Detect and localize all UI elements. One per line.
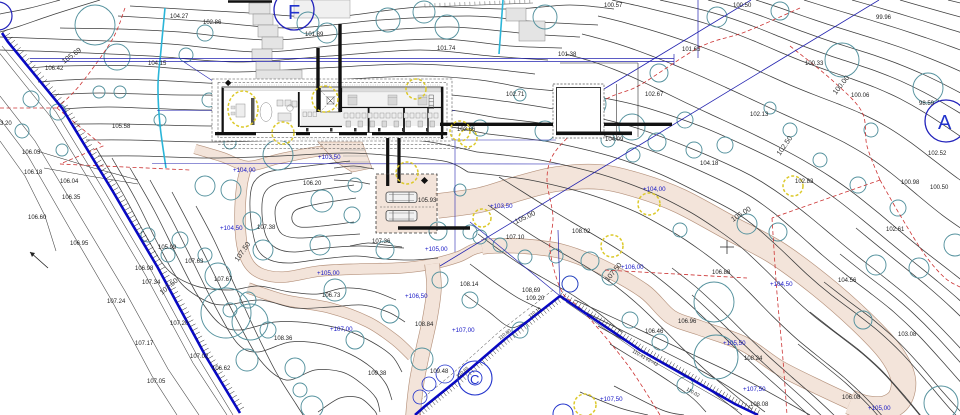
svg-text:104.27: 104.27 <box>170 14 189 20</box>
svg-text:+104,00: +104,00 <box>643 186 666 193</box>
svg-text:102.13: 102.13 <box>750 112 769 118</box>
svg-text:105.99: 105.99 <box>158 245 177 251</box>
svg-text:+103,50: +103,50 <box>490 203 513 210</box>
svg-text:101.89: 101.89 <box>305 32 324 38</box>
svg-text:109.48: 109.48 <box>430 369 449 375</box>
svg-text:106.42: 106.42 <box>45 66 64 72</box>
svg-text:104.18: 104.18 <box>700 161 719 167</box>
svg-text:3.20: 3.20 <box>0 121 12 127</box>
svg-text:100.98: 100.98 <box>901 180 920 186</box>
svg-text:106.60: 106.60 <box>28 215 47 221</box>
svg-text:+105,00: +105,00 <box>868 405 891 412</box>
svg-text:107.24: 107.24 <box>107 299 126 305</box>
svg-text:+103,50: +103,50 <box>318 154 341 161</box>
svg-text:+107,00: +107,00 <box>330 326 353 333</box>
svg-text:101.65: 101.65 <box>682 47 701 53</box>
svg-text:102.52: 102.52 <box>928 151 947 157</box>
svg-text:+104,00: +104,00 <box>233 167 256 174</box>
svg-text:101.74: 101.74 <box>437 46 456 52</box>
svg-text:100.57: 100.57 <box>604 3 623 9</box>
svg-text:106.88: 106.88 <box>712 270 731 276</box>
svg-text:101.38: 101.38 <box>558 52 577 58</box>
svg-text:106.18: 106.18 <box>24 170 43 176</box>
svg-text:C: C <box>470 372 479 387</box>
svg-text:107.17: 107.17 <box>135 341 154 347</box>
svg-text:102.61: 102.61 <box>886 227 905 233</box>
svg-text:102.71: 102.71 <box>506 92 525 98</box>
svg-text:+107,00: +107,00 <box>452 327 475 334</box>
svg-text:109.20: 109.20 <box>526 296 545 302</box>
svg-text:102.83: 102.83 <box>795 179 814 185</box>
svg-text:107.36: 107.36 <box>372 239 391 245</box>
svg-text:104.56: 104.56 <box>838 278 857 284</box>
svg-text:+105,50: +105,50 <box>723 340 746 347</box>
svg-text:107.05: 107.05 <box>147 379 166 385</box>
svg-text:107.67: 107.67 <box>214 277 233 283</box>
svg-text:107.34: 107.34 <box>142 280 161 286</box>
svg-text:+106,50: +106,50 <box>405 293 428 300</box>
svg-text:105.00: 105.00 <box>513 208 537 225</box>
svg-text:103.08: 103.08 <box>898 332 917 338</box>
svg-text:F: F <box>288 2 300 24</box>
svg-text:+107,50: +107,50 <box>743 386 766 393</box>
svg-text:+105,00: +105,00 <box>317 270 340 277</box>
svg-text:100.06: 100.06 <box>851 93 870 99</box>
svg-text:108,69: 108,69 <box>522 288 541 294</box>
svg-text:+105,00: +105,00 <box>425 246 448 253</box>
svg-text:108.02: 108.02 <box>572 229 591 235</box>
svg-text:106.35: 106.35 <box>62 195 81 201</box>
svg-text:104.09: 104.09 <box>605 137 624 143</box>
svg-text:110.02: 110.02 <box>685 387 701 400</box>
svg-text:105.58: 105.58 <box>112 124 131 130</box>
svg-text:107.10: 107.10 <box>506 235 525 241</box>
svg-text:107.02: 107.02 <box>190 354 209 360</box>
svg-text:105.69: 105.69 <box>60 45 83 65</box>
svg-text:100.50: 100.50 <box>930 185 949 191</box>
svg-text:109.38: 109.38 <box>368 371 387 377</box>
svg-text:108.24: 108.24 <box>744 356 763 362</box>
svg-text:+106,00: +106,00 <box>621 264 644 271</box>
svg-text:108.36: 108.36 <box>274 336 293 342</box>
svg-text:106.04: 106.04 <box>60 179 79 185</box>
svg-text:107.50: 107.50 <box>159 277 180 296</box>
svg-text:106.46: 106.46 <box>645 329 664 335</box>
svg-text:+107,50: +107,50 <box>600 396 623 403</box>
svg-text:106.96: 106.96 <box>678 319 697 325</box>
svg-text:102.86: 102.86 <box>203 20 222 26</box>
svg-text:108.08: 108.08 <box>750 402 769 408</box>
svg-text:106.95: 106.95 <box>70 241 89 247</box>
svg-text:106.03: 106.03 <box>22 150 41 156</box>
svg-text:106.98: 106.98 <box>135 266 154 272</box>
svg-text:106.08: 106.08 <box>842 395 861 401</box>
svg-text:106.62: 106.62 <box>212 366 231 372</box>
svg-text:99.96: 99.96 <box>876 15 892 21</box>
svg-text:100.00: 100.00 <box>830 73 851 96</box>
svg-text:100.50: 100.50 <box>733 3 752 9</box>
svg-text:A: A <box>938 112 952 134</box>
svg-text:+104,50: +104,50 <box>220 225 243 232</box>
svg-text:107.38: 107.38 <box>257 225 276 231</box>
svg-text:100.33: 100.33 <box>805 61 824 67</box>
svg-text:105.93: 105.93 <box>418 198 437 204</box>
svg-text:106.73: 106.73 <box>322 293 341 299</box>
svg-text:107.20: 107.20 <box>170 321 189 327</box>
svg-text:103.66: 103.66 <box>457 127 476 133</box>
svg-text:104.15: 104.15 <box>148 61 167 67</box>
svg-text:102.67: 102.67 <box>645 92 664 98</box>
svg-text:106.20: 106.20 <box>303 181 322 187</box>
svg-text:107.63: 107.63 <box>185 259 204 265</box>
svg-text:+104,50: +104,50 <box>770 281 793 288</box>
svg-text:98.59: 98.59 <box>919 101 935 107</box>
svg-text:108.84: 108.84 <box>415 322 434 328</box>
svg-text:108.14: 108.14 <box>460 282 479 288</box>
